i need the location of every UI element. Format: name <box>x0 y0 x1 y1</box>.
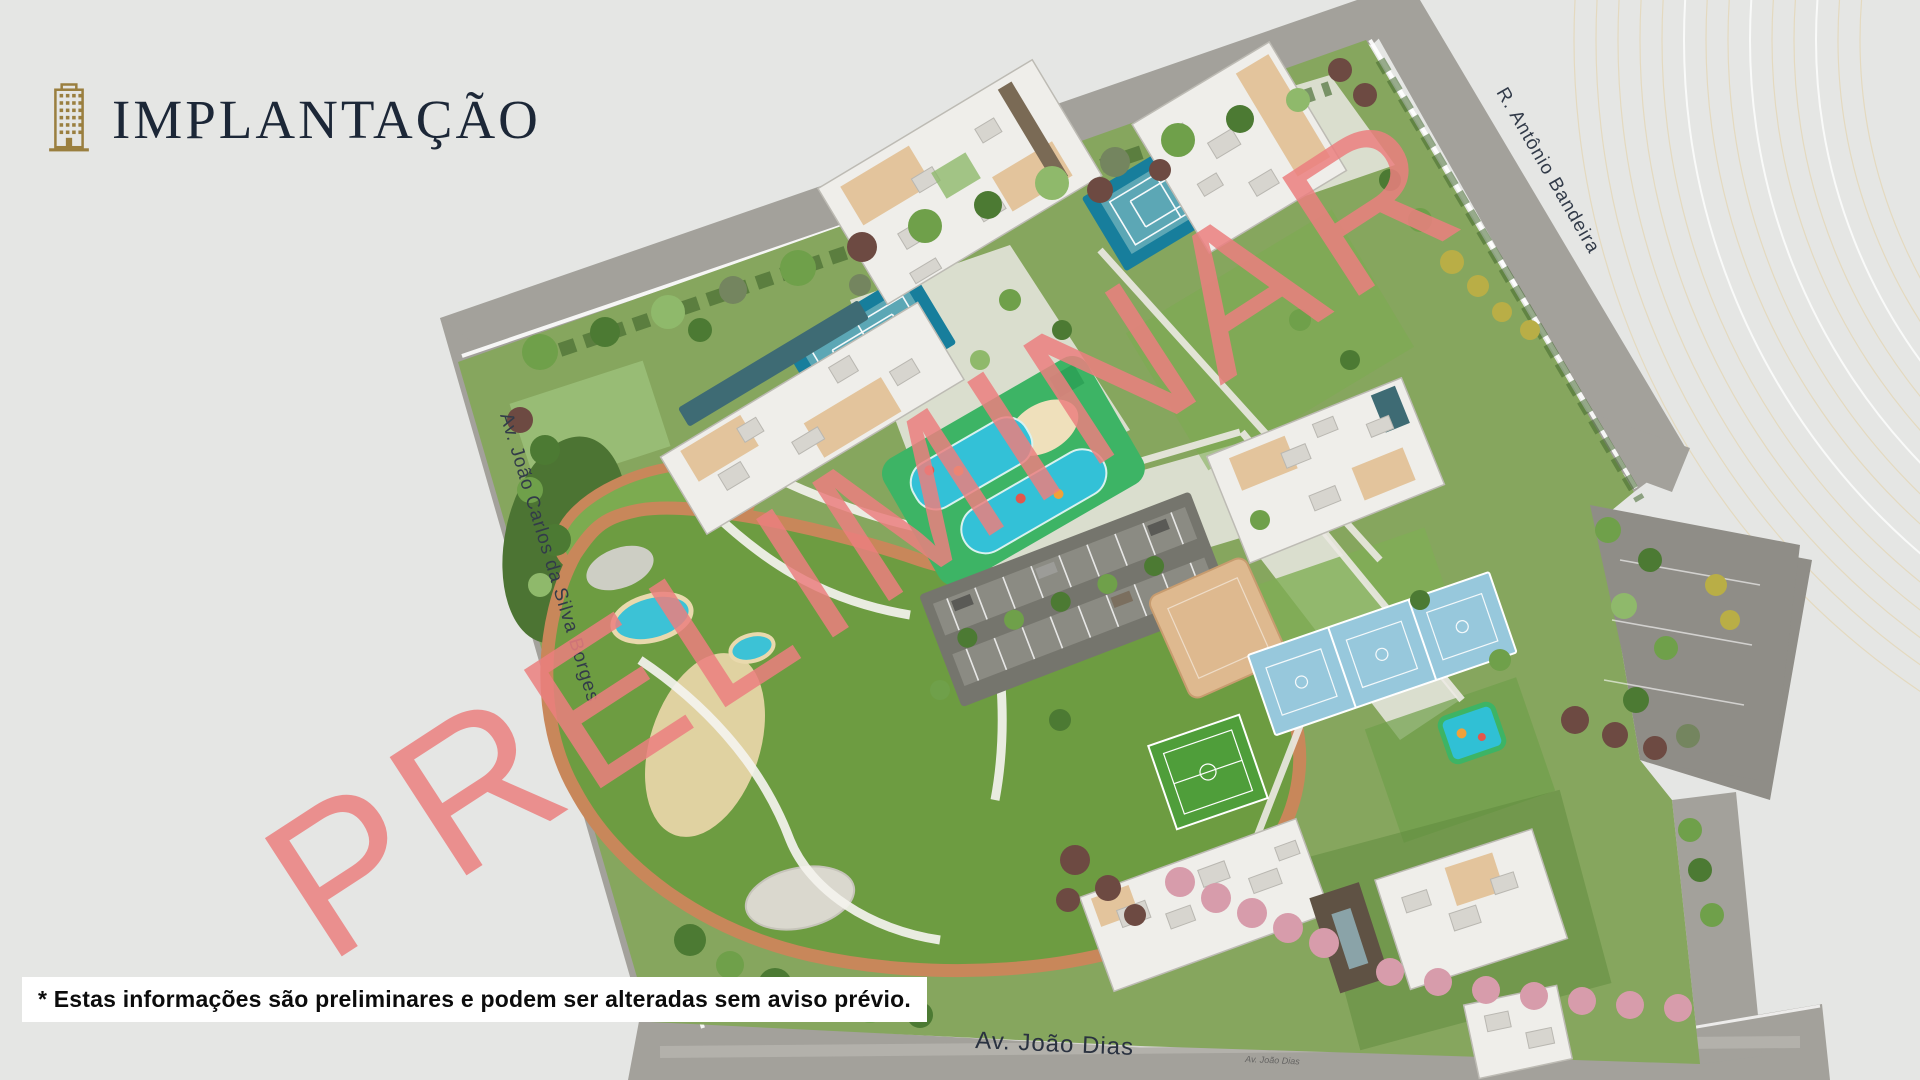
disclaimer-banner: * Estas informações são preliminares e p… <box>22 977 927 1022</box>
building-icon <box>46 82 92 156</box>
header: IMPLANTAÇÃO <box>46 82 541 156</box>
page-title: IMPLANTAÇÃO <box>112 88 541 151</box>
slide: Av. João Carlos da Silva Borges R. Antôn… <box>0 0 1920 1080</box>
site-plan-rendering: Av. João Carlos da Silva Borges R. Antôn… <box>0 0 1920 1080</box>
